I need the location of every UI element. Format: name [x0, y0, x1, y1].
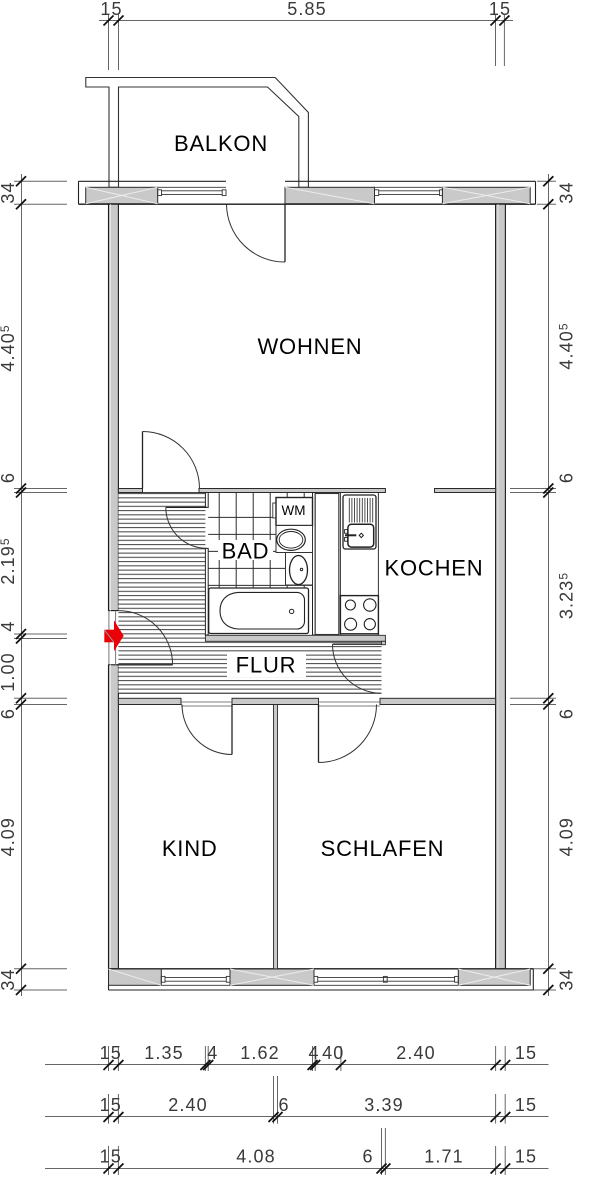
svg-text:15: 15 — [100, 0, 122, 19]
svg-text:4: 4 — [207, 1043, 218, 1063]
svg-text:6: 6 — [278, 1095, 289, 1115]
svg-text:5.85: 5.85 — [287, 0, 326, 19]
svg-text:34: 34 — [557, 181, 577, 203]
svg-text:SCHLAFEN: SCHLAFEN — [321, 836, 445, 861]
svg-text:6: 6 — [0, 708, 18, 719]
svg-text:15: 15 — [489, 0, 511, 19]
svg-text:4.09: 4.09 — [0, 817, 18, 856]
svg-text:40: 40 — [322, 1043, 344, 1063]
svg-text:BAD: BAD — [222, 539, 270, 564]
svg-text:WM: WM — [282, 503, 306, 518]
svg-text:6: 6 — [362, 1147, 373, 1167]
svg-text:6: 6 — [557, 708, 577, 719]
svg-text:4.09: 4.09 — [557, 817, 577, 856]
svg-text:15: 15 — [515, 1043, 537, 1063]
svg-text:6: 6 — [557, 472, 577, 483]
svg-text:2.40: 2.40 — [396, 1043, 435, 1063]
svg-text:KIND: KIND — [162, 836, 218, 861]
svg-text:1.00: 1.00 — [0, 652, 18, 691]
svg-text:15: 15 — [100, 1043, 122, 1063]
svg-text:4: 4 — [308, 1043, 319, 1063]
svg-text:3.39: 3.39 — [364, 1095, 403, 1115]
svg-text:2.40: 2.40 — [168, 1095, 207, 1115]
svg-text:34: 34 — [0, 181, 18, 203]
svg-text:1.71: 1.71 — [424, 1147, 463, 1167]
svg-text:KOCHEN: KOCHEN — [385, 556, 484, 581]
svg-text:15: 15 — [100, 1095, 122, 1115]
svg-text:15: 15 — [100, 1147, 122, 1167]
svg-text:1.35: 1.35 — [144, 1043, 183, 1063]
svg-text:WOHNEN: WOHNEN — [257, 334, 362, 359]
svg-text:4: 4 — [0, 620, 18, 631]
svg-text:BALKON: BALKON — [174, 131, 268, 156]
svg-text:15: 15 — [515, 1095, 537, 1115]
svg-text:FLUR: FLUR — [236, 653, 297, 678]
svg-text:34: 34 — [0, 968, 18, 990]
svg-text:34: 34 — [557, 968, 577, 990]
svg-text:15: 15 — [515, 1147, 537, 1167]
svg-text:1.62: 1.62 — [240, 1043, 279, 1063]
svg-text:6: 6 — [0, 472, 18, 483]
svg-text:4.08: 4.08 — [236, 1147, 275, 1167]
